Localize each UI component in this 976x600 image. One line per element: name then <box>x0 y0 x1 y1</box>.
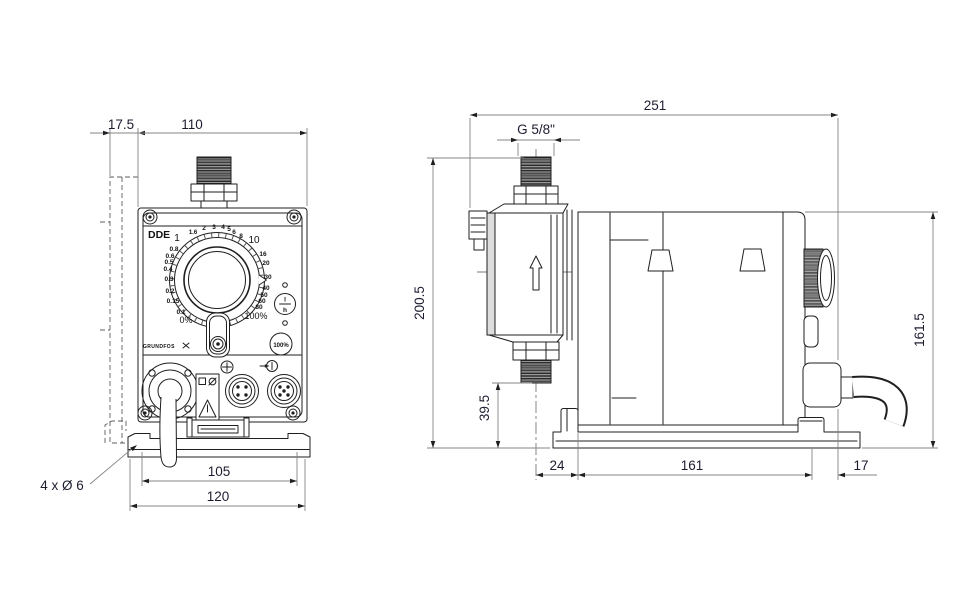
dim-total-height: 200.5 <box>412 286 427 320</box>
motor-housing <box>567 210 805 425</box>
dim-mounting-holes: 4 x Ø 6 <box>40 478 84 493</box>
dim-housing-height: 161.5 <box>912 313 927 347</box>
pump-dimensional-drawing: DDE 1 1.6 2 3 4 5 6 8 10 16 20 30 40 50 … <box>0 0 976 600</box>
scale-3: 3 <box>212 224 216 231</box>
dim-connection-thread: G 5/8" <box>517 122 555 137</box>
scale-40: 40 <box>262 285 270 292</box>
scale-6: 6 <box>232 229 236 236</box>
scale-20: 20 <box>262 260 270 267</box>
rear-dial-knob[interactable] <box>804 249 835 307</box>
rear-cover <box>783 212 805 425</box>
scale-1-6: 1.6 <box>189 230 198 236</box>
thread-side-bottom <box>521 360 551 383</box>
unit-denominator: h <box>283 307 287 314</box>
scale-10: 10 <box>248 235 260 246</box>
thread-side-top <box>521 157 551 186</box>
screw-icon <box>221 361 233 373</box>
scale-80: 80 <box>255 304 263 311</box>
scale-0-8: 0.8 <box>169 246 178 253</box>
scale-5: 5 <box>227 226 231 233</box>
warning-label <box>196 374 219 420</box>
scale-max: 100% <box>244 311 267 321</box>
brand-label: GRUNDFOS <box>143 344 175 350</box>
rear-bracket <box>804 316 818 347</box>
dim-head-offset: 24 <box>549 458 565 473</box>
dim-outlet-height: 39.5 <box>477 395 492 421</box>
dial-lock-tab <box>207 313 230 357</box>
scale-30: 30 <box>264 274 272 281</box>
thread-front <box>197 157 231 184</box>
scale-0-3: 0.3 <box>164 276 173 283</box>
dim-base-inner-width: 105 <box>208 464 231 479</box>
scale-0-5: 0.5 <box>164 259 173 266</box>
scale-16: 16 <box>259 251 267 258</box>
dim-base-width: 120 <box>207 489 230 504</box>
dim-plate-depth: 17.5 <box>108 117 134 132</box>
dim-front-width: 110 <box>181 117 203 132</box>
scale-0-15: 0.15 <box>167 298 180 305</box>
unit-numerator: l <box>284 297 286 304</box>
dim-total-length: 251 <box>644 98 667 113</box>
scale-2: 2 <box>202 225 206 232</box>
scale-8: 8 <box>239 233 243 240</box>
scale-min: 0% <box>179 315 192 325</box>
side-inlet-connector <box>514 157 558 204</box>
prime-button-label: 100% <box>273 343 289 349</box>
scale-1: 1 <box>174 233 180 244</box>
scale-4: 4 <box>221 224 225 231</box>
dimensional-drawing-page: DDE 1 1.6 2 3 4 5 6 8 10 16 20 30 40 50 … <box>0 0 976 600</box>
scale-0-4: 0.4 <box>163 266 172 273</box>
dim-housing-length: 161 <box>681 458 704 473</box>
power-cable-front <box>160 397 177 467</box>
clamp-tab-1 <box>648 250 673 271</box>
clamp-tab-2 <box>740 249 765 271</box>
front-inlet-connector <box>191 157 237 208</box>
dim-rear-offset: 17 <box>853 458 868 473</box>
scale-0-2: 0.2 <box>165 288 174 295</box>
model-label: DDE <box>148 229 170 241</box>
